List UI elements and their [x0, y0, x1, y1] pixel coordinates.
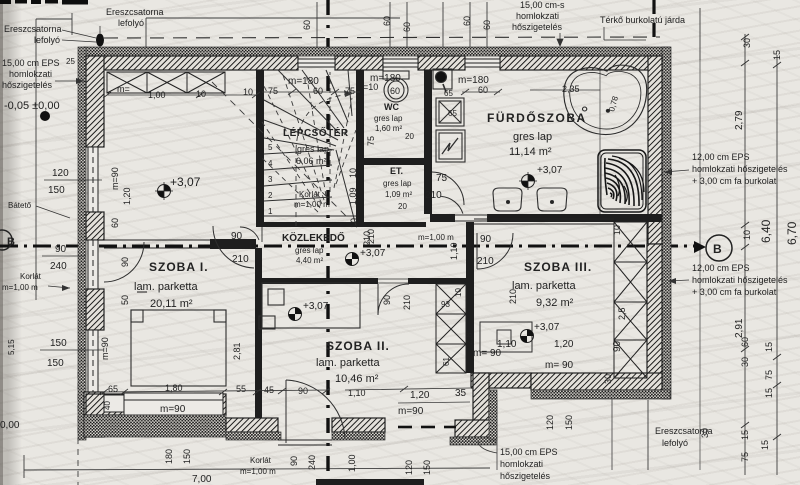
svg-text:10: 10	[454, 288, 463, 297]
svg-text:60: 60	[462, 16, 472, 26]
svg-text:Bátető: Bátető	[8, 201, 32, 210]
svg-text:5,15: 5,15	[7, 339, 16, 355]
svg-text:1,20: 1,20	[122, 187, 132, 205]
svg-text:75: 75	[740, 452, 750, 462]
svg-text:homlokzati: homlokzati	[500, 459, 543, 469]
svg-text:Korlát: Korlát	[20, 272, 42, 281]
svg-text:30: 30	[740, 357, 750, 367]
svg-text:m=1,00 m: m=1,00 m	[2, 283, 38, 292]
svg-text:1,20: 1,20	[410, 390, 430, 401]
svg-text:240: 240	[307, 455, 317, 470]
svg-text:15,00 cm EPS: 15,00 cm EPS	[2, 58, 60, 68]
svg-text:lefolyó: lefolyó	[34, 35, 60, 45]
svg-text:30: 30	[742, 38, 752, 48]
svg-text:1,00: 1,00	[347, 454, 357, 472]
svg-text:1,00: 1,00	[148, 90, 166, 100]
svg-text:10: 10	[196, 89, 206, 99]
svg-text:150: 150	[47, 358, 64, 369]
svg-text:=10: =10	[363, 82, 378, 92]
svg-text:1,10: 1,10	[497, 339, 517, 350]
svg-text:10: 10	[243, 87, 253, 97]
svg-text:SZOBA III.: SZOBA III.	[524, 260, 592, 274]
svg-text:1,09 m²: 1,09 m²	[385, 190, 412, 199]
svg-text:55: 55	[236, 384, 246, 394]
svg-text:gres lap: gres lap	[383, 179, 412, 188]
svg-text:FÜRDŐSZOBA: FÜRDŐSZOBA	[487, 110, 587, 125]
svg-text:12,00 cm EPS: 12,00 cm EPS	[692, 152, 750, 162]
svg-text:ET.: ET.	[390, 166, 403, 176]
svg-text:90: 90	[289, 456, 299, 466]
svg-text:60: 60	[302, 20, 312, 30]
svg-text:m=90: m=90	[160, 404, 186, 415]
svg-text:10: 10	[348, 168, 358, 178]
svg-text:180: 180	[164, 449, 174, 464]
svg-text:Korlát: Korlát	[250, 456, 272, 465]
svg-text:10: 10	[742, 230, 752, 240]
svg-text:gres lap: gres lap	[374, 114, 403, 123]
svg-text:lam. parketta: lam. parketta	[134, 281, 198, 293]
svg-text:homlokzati hőszigetelés: homlokzati hőszigetelés	[692, 275, 788, 285]
svg-text:150: 150	[50, 338, 67, 349]
svg-text:+ 3,00 cm fa burkolat: + 3,00 cm fa burkolat	[692, 287, 777, 297]
svg-text:150: 150	[422, 460, 432, 475]
svg-text:lefolyó: lefolyó	[662, 438, 688, 448]
svg-text:75: 75	[366, 136, 376, 146]
svg-text:+3,07: +3,07	[534, 322, 560, 333]
svg-text:m=90: m=90	[110, 167, 120, 190]
svg-text:11,14 m²: 11,14 m²	[509, 146, 552, 158]
svg-text:5: 5	[268, 143, 273, 152]
svg-text:65: 65	[108, 384, 118, 394]
svg-text:15,00 cm-s: 15,00 cm-s	[520, 0, 565, 10]
svg-text:12,00 cm EPS: 12,00 cm EPS	[692, 263, 750, 273]
svg-text:gres lap: gres lap	[297, 144, 329, 154]
svg-text:2,8: 2,8	[464, 332, 474, 345]
svg-text:lefolyó: lefolyó	[118, 18, 144, 28]
svg-text:75: 75	[345, 86, 355, 96]
svg-text:60: 60	[482, 20, 492, 30]
svg-text:B: B	[7, 236, 15, 248]
svg-text:210: 210	[477, 256, 494, 267]
svg-text:61: 61	[442, 357, 451, 366]
svg-text:6,70: 6,70	[785, 221, 799, 245]
svg-text:Ereszcsatorna: Ereszcsatorna	[4, 24, 62, 34]
svg-text:1,60 m²: 1,60 m²	[375, 124, 402, 133]
svg-text:SZOBA II.: SZOBA II.	[326, 339, 390, 353]
svg-text:+3,07: +3,07	[360, 248, 386, 259]
svg-text:120: 120	[404, 460, 414, 475]
svg-text:210: 210	[508, 289, 518, 304]
svg-text:90: 90	[120, 257, 130, 267]
svg-text:0,78: 0,78	[607, 95, 620, 113]
svg-text:40: 40	[103, 401, 112, 410]
svg-text:gres lap: gres lap	[513, 131, 552, 143]
svg-text:75: 75	[764, 370, 774, 380]
svg-text:25: 25	[66, 57, 75, 66]
svg-text:+3,07: +3,07	[170, 175, 201, 189]
svg-text:10: 10	[612, 225, 622, 235]
svg-text:m=1,00 m: m=1,00 m	[294, 200, 330, 209]
svg-text:Ereszcsatorna: Ereszcsatorna	[106, 7, 164, 17]
svg-text:60: 60	[382, 16, 392, 26]
svg-text:15: 15	[764, 388, 774, 398]
svg-text:homlokzati: homlokzati	[9, 69, 52, 79]
svg-text:1: 1	[268, 207, 273, 216]
svg-text:30: 30	[603, 374, 613, 384]
svg-text:m= 90: m= 90	[545, 360, 574, 371]
svg-text:B: B	[713, 242, 722, 256]
svg-text:2,91: 2,91	[734, 318, 745, 338]
svg-text:75: 75	[436, 173, 448, 184]
svg-text:210: 210	[232, 254, 249, 265]
svg-text:Térkő burkolatú járda: Térkő burkolatú járda	[600, 15, 685, 25]
svg-text:m=: m=	[117, 84, 130, 94]
svg-text:15: 15	[772, 50, 782, 60]
svg-text:60: 60	[313, 86, 323, 96]
svg-text:1,20: 1,20	[554, 339, 574, 350]
svg-text:60: 60	[402, 22, 412, 32]
svg-text:60: 60	[740, 337, 750, 347]
svg-text:m=1,00 m: m=1,00 m	[240, 467, 276, 476]
svg-text:150: 150	[564, 415, 574, 430]
svg-text:90: 90	[298, 386, 308, 396]
svg-text:m=1,00 m: m=1,00 m	[418, 233, 454, 242]
svg-text:15: 15	[764, 342, 774, 352]
svg-text:93: 93	[441, 300, 450, 309]
svg-text:30: 30	[700, 428, 710, 438]
svg-text:m=90: m=90	[100, 337, 110, 360]
svg-text:hőszigetelés: hőszigetelés	[512, 22, 563, 32]
svg-text:lam. parketta: lam. parketta	[316, 357, 380, 369]
svg-text:2: 2	[268, 191, 273, 200]
svg-text:20: 20	[405, 132, 414, 141]
svg-text:0,00: 0,00	[0, 420, 20, 431]
svg-text:9,32 m²: 9,32 m²	[536, 297, 574, 309]
svg-text:210: 210	[425, 190, 442, 201]
svg-text:210: 210	[366, 229, 376, 244]
svg-text:1,09: 1,09	[348, 187, 358, 205]
svg-text:1,19: 1,19	[449, 242, 459, 260]
svg-text:20: 20	[398, 202, 407, 211]
svg-text:2,35: 2,35	[562, 84, 580, 94]
svg-text:gres lap: gres lap	[295, 246, 324, 255]
svg-text:90: 90	[231, 231, 243, 242]
svg-text:-0,05 ±0,00: -0,05 ±0,00	[4, 100, 60, 112]
svg-text:90: 90	[612, 340, 623, 352]
svg-text:lam. parketta: lam. parketta	[512, 280, 576, 292]
svg-text:SZOBA I.: SZOBA I.	[149, 260, 209, 274]
svg-text:10: 10	[349, 218, 359, 228]
svg-text:120: 120	[545, 415, 555, 430]
svg-text:4,40 m²: 4,40 m²	[296, 256, 323, 265]
svg-text:m=90: m=90	[398, 406, 424, 417]
svg-text:60: 60	[390, 86, 400, 96]
svg-text:homlokzati: homlokzati	[516, 11, 559, 21]
svg-text:+3,07: +3,07	[303, 301, 329, 312]
svg-text:15: 15	[760, 440, 770, 450]
svg-text:15,00 cm EPS: 15,00 cm EPS	[500, 447, 558, 457]
svg-text:45: 45	[264, 385, 274, 395]
svg-text:3: 3	[268, 175, 273, 184]
svg-text:+ 3,00 cm fa burkolat: + 3,00 cm fa burkolat	[692, 176, 777, 186]
svg-text:4: 4	[268, 159, 273, 168]
svg-text:6,40: 6,40	[759, 219, 773, 243]
svg-text:75: 75	[268, 86, 278, 96]
svg-text:150: 150	[48, 185, 65, 196]
svg-text:hőszigetelés: hőszigetelés	[2, 80, 53, 90]
svg-text:90: 90	[382, 295, 392, 305]
svg-text:+3,07: +3,07	[537, 165, 563, 176]
svg-text:7,00: 7,00	[192, 474, 212, 485]
svg-text:KÖZLEKEDŐ: KÖZLEKEDŐ	[282, 231, 345, 244]
svg-text:50: 50	[120, 295, 130, 305]
svg-text:150: 150	[182, 449, 192, 464]
svg-text:65: 65	[448, 109, 457, 118]
svg-text:10,46 m²: 10,46 m²	[335, 373, 379, 385]
svg-text:90: 90	[55, 244, 67, 255]
svg-text:60: 60	[110, 218, 120, 228]
svg-text:35: 35	[455, 388, 467, 399]
svg-text:2,81: 2,81	[232, 342, 242, 360]
svg-text:120: 120	[52, 168, 69, 179]
svg-text:60: 60	[478, 85, 488, 95]
svg-text:hőszigetelés: hőszigetelés	[500, 471, 551, 481]
svg-text:20,11 m²: 20,11 m²	[150, 298, 193, 310]
svg-text:Korlát: Korlát	[299, 190, 321, 199]
svg-text:6,06 m²: 6,06 m²	[296, 156, 327, 166]
svg-text:65: 65	[444, 89, 453, 98]
svg-text:15: 15	[740, 430, 750, 440]
svg-text:2,5: 2,5	[617, 307, 627, 320]
svg-text:LÉPCSŐTÉR: LÉPCSŐTÉR	[283, 126, 349, 139]
svg-text:homlokzati hőszigetelés: homlokzati hőszigetelés	[692, 164, 788, 174]
svg-text:240: 240	[50, 261, 67, 272]
svg-text:210: 210	[402, 295, 412, 310]
svg-text:2,79: 2,79	[734, 110, 745, 130]
svg-text:90: 90	[480, 234, 492, 245]
svg-text:WC: WC	[384, 102, 399, 112]
